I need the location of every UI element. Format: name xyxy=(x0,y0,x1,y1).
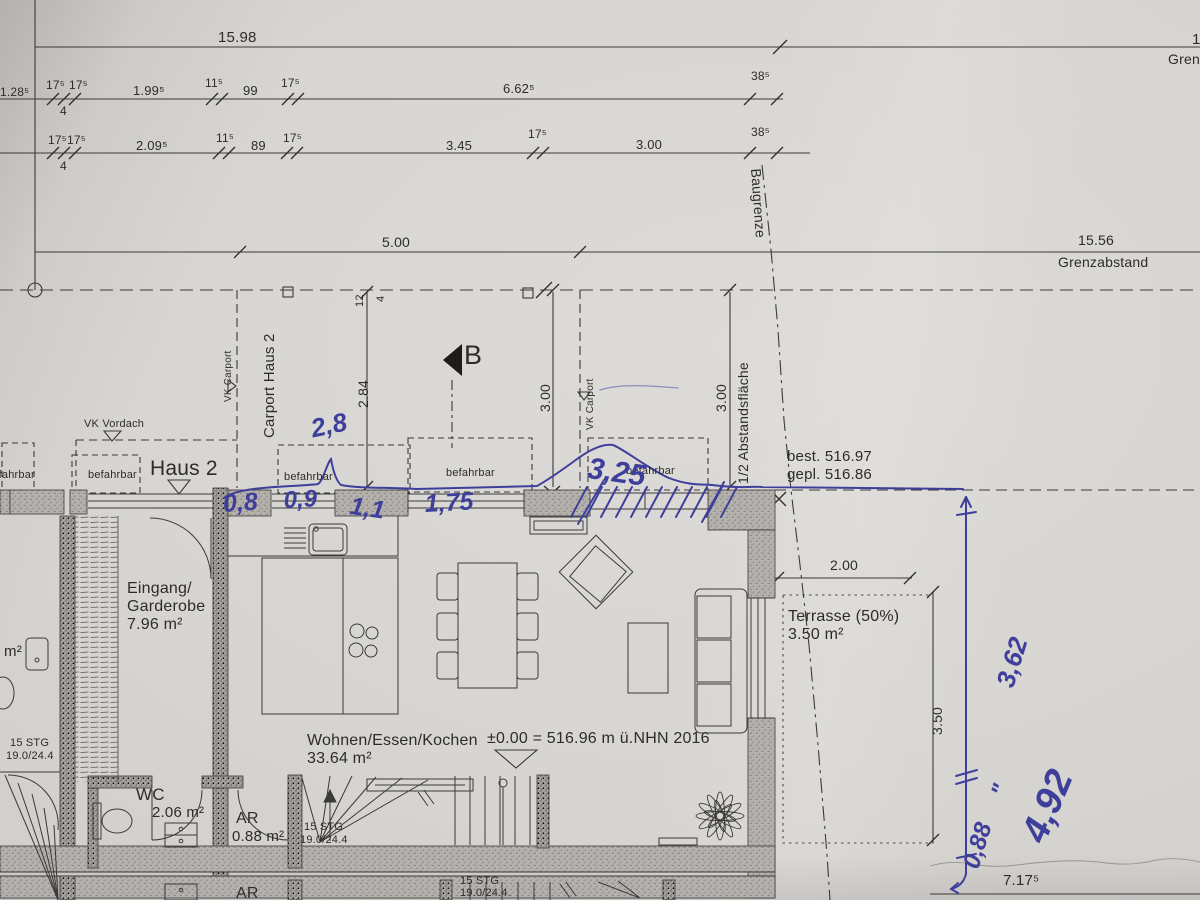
label-vk-carport-right: VK Carport xyxy=(586,379,597,430)
handwriting-0-8: 0,8 xyxy=(222,488,259,519)
dim-r2-7: 3.45 xyxy=(446,139,472,153)
dim-overall-top: 15.98 xyxy=(218,30,257,46)
plan-linework xyxy=(0,0,1200,900)
dim-r2-8: 17⁵ xyxy=(528,128,547,141)
label-grenzabstand: Grenzabstand xyxy=(1058,255,1148,270)
dim-r1-6: 99 xyxy=(243,84,258,98)
label-befahrbar-2: befahrbar xyxy=(88,470,137,482)
room-ar-lower: AR xyxy=(236,886,259,900)
handwriting-0-9: 0,9 xyxy=(283,485,318,515)
dim-15-56: 15.56 xyxy=(1078,233,1114,248)
dim-r2-9: 3.00 xyxy=(636,138,662,152)
dim-3-00-right: 3.00 xyxy=(714,384,729,412)
dim-2-00: 2.00 xyxy=(830,558,858,573)
dim-4c: 4 xyxy=(376,296,388,302)
dim-r1-10: 4 xyxy=(60,105,67,118)
label-best: best. 516.97 xyxy=(787,449,872,465)
stairs-stg-2: 15 STG xyxy=(460,876,499,888)
room-m2-partial: m² xyxy=(4,644,22,660)
handwriting-1-1: 1,1 xyxy=(348,492,386,526)
room-wc: WC xyxy=(136,786,165,804)
dim-r1-9: 38⁵ xyxy=(751,70,770,83)
stairs-stg-1: 15 STG xyxy=(304,822,343,834)
room-terrasse-area: 3.50 m² xyxy=(788,627,844,644)
stairs-riser-3: 19.0/24.4 xyxy=(6,751,54,763)
room-eingang-area: 7.96 m² xyxy=(127,617,183,634)
stairs-stg-3: 15 STG xyxy=(10,738,49,750)
handwriting-1-75: 1,75 xyxy=(424,487,474,519)
label-befahrbar-1: befahrbar xyxy=(0,470,35,482)
dim-3-00-left: 3.00 xyxy=(538,384,553,412)
dim-r1-3: 17⁵ xyxy=(69,79,88,92)
dim-7-17: 7.17⁵ xyxy=(1003,873,1039,889)
room-wc-area: 2.06 m² xyxy=(152,805,204,821)
label-abstandsflaeche: 1/2 Abstandsfläche xyxy=(736,362,751,484)
room-eingang-1: Eingang/ xyxy=(127,581,192,598)
room-eingang-2: Garderobe xyxy=(127,599,205,616)
dim-r2-11: 4 xyxy=(60,160,67,173)
label-gepl: gepl. 516.86 xyxy=(787,467,872,483)
dim-r1-5: 11⁵ xyxy=(205,77,223,90)
dim-r2-4: 11⁵ xyxy=(216,132,234,145)
label-section-b: B xyxy=(464,341,482,369)
room-ar: AR xyxy=(236,811,259,828)
dim-r1-7: 17⁵ xyxy=(281,77,300,90)
dim-12: 12 xyxy=(355,294,367,307)
floor-plan: 15.98 1 Gren 1.28⁵ 17⁵ 17⁵ 1.99⁵ 11⁵ 99 … xyxy=(0,0,1200,900)
dim-r1-1: 1.28⁵ xyxy=(0,86,29,99)
label-befahrbar-3: befahrbar xyxy=(284,472,333,484)
dim-2-84: 2.84 xyxy=(356,380,371,408)
dim-r2-2: 17⁵ xyxy=(67,134,86,147)
label-carport-haus2: Carport Haus 2 xyxy=(262,333,278,438)
room-ar-area: 0.88 m² xyxy=(232,829,284,845)
dim-r1-2: 17⁵ xyxy=(46,79,65,92)
dim-r1-8: 6.62⁵ xyxy=(503,82,535,96)
dim-r2-10: 38⁵ xyxy=(751,126,770,139)
dim-r2-6: 17⁵ xyxy=(283,132,302,145)
label-befahrbar-4: befahrbar xyxy=(446,468,495,480)
label-grenz-partial: Gren xyxy=(1168,52,1200,67)
label-haus2: Haus 2 xyxy=(150,458,218,480)
room-terrasse: Terrasse (50%) xyxy=(788,609,899,626)
dim-r2-1: 17⁵ xyxy=(48,134,67,147)
stairs-riser-1: 19.0/24.4 xyxy=(300,835,348,847)
dim-r2-3: 2.09⁵ xyxy=(136,139,168,153)
room-wohnen-area: 33.64 m² xyxy=(307,751,372,768)
label-vk-carport-left: VK Carport xyxy=(224,351,235,402)
stairs-riser-2: 19.0/24.4. xyxy=(460,888,511,900)
dim-right-partial: 1 xyxy=(1192,32,1200,48)
label-vk-vordach: VK Vordach xyxy=(84,419,144,431)
dim-5m: 5.00 xyxy=(382,235,410,250)
dim-r2-5: 89 xyxy=(251,139,266,153)
room-wohnen: Wohnen/Essen/Kochen xyxy=(307,733,478,750)
dim-r1-4: 1.99⁵ xyxy=(133,84,165,98)
dim-3-50: 3.50 xyxy=(930,707,945,735)
label-level: ±0.00 = 516.96 m ü.NHN 2016 xyxy=(487,731,710,748)
